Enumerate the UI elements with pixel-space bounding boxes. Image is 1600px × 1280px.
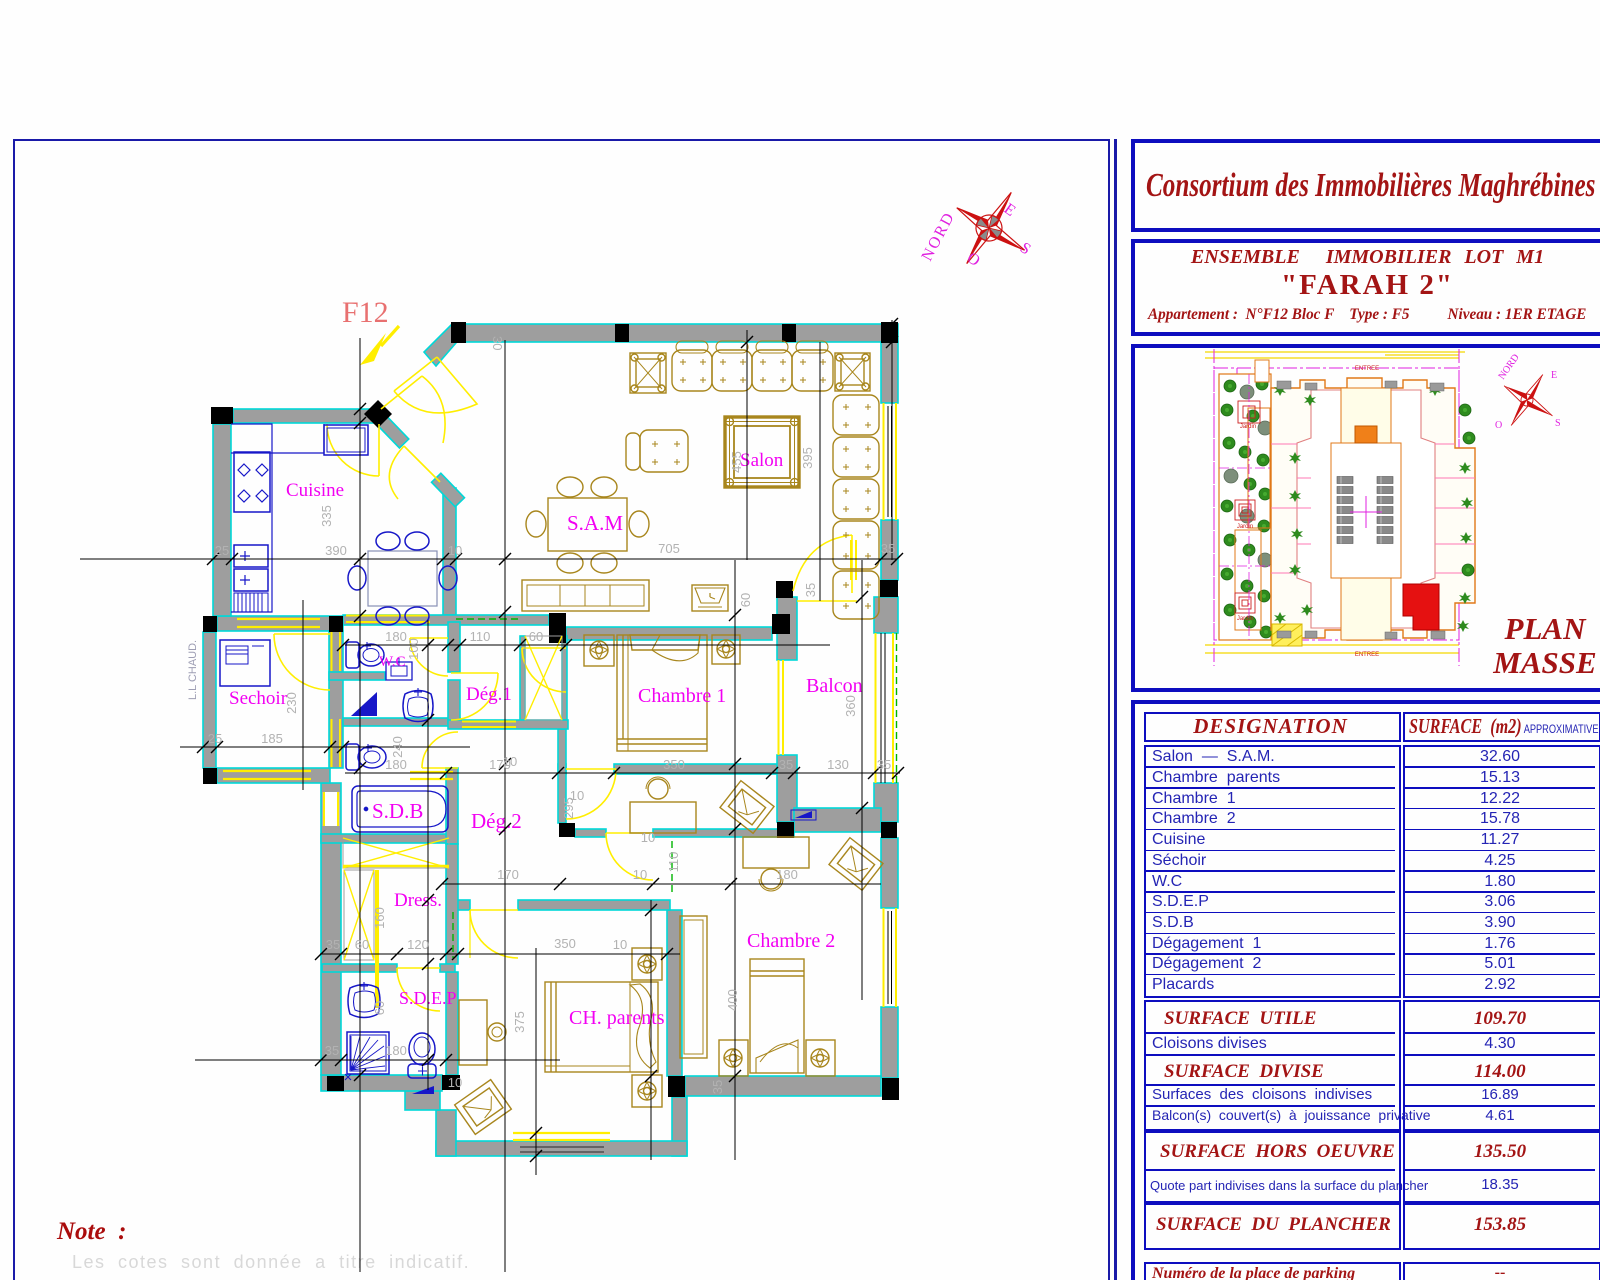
svg-text:120: 120 — [407, 937, 429, 952]
svg-text:390: 390 — [325, 543, 347, 558]
svg-text:35: 35 — [326, 937, 340, 952]
svg-text:455: 455 — [729, 451, 744, 473]
svg-text:10: 10 — [503, 754, 517, 769]
svg-text:35: 35 — [881, 541, 895, 556]
svg-text:S.A.M: S.A.M — [567, 511, 623, 535]
svg-text:180: 180 — [385, 757, 407, 772]
svg-text:S.D.B: S.D.B — [372, 799, 423, 823]
svg-text:Sechoir: Sechoir — [229, 688, 288, 709]
svg-text:35: 35 — [803, 583, 818, 597]
svg-text:295: 295 — [561, 797, 576, 819]
svg-text:Jardin: Jardin — [1237, 524, 1253, 530]
svg-text:NORD: NORD — [919, 209, 959, 264]
svg-text:160: 160 — [372, 907, 387, 929]
svg-text:Jardin: Jardin — [1237, 616, 1253, 622]
svg-text:Balcon: Balcon — [806, 675, 863, 697]
svg-text:705: 705 — [658, 541, 680, 556]
svg-text:185: 185 — [261, 731, 283, 746]
svg-text:35: 35 — [325, 1043, 339, 1058]
svg-text:10: 10 — [448, 1075, 462, 1090]
svg-text:E: E — [1001, 200, 1019, 220]
svg-text:10: 10 — [641, 830, 655, 845]
svg-text:60: 60 — [529, 629, 543, 644]
svg-text:25: 25 — [215, 543, 229, 558]
svg-text:10: 10 — [633, 867, 647, 882]
svg-text:W.C: W.C — [379, 654, 406, 670]
svg-text:60: 60 — [738, 593, 753, 607]
svg-text:400: 400 — [725, 989, 740, 1011]
svg-text:170: 170 — [497, 867, 519, 882]
svg-text:230: 230 — [284, 692, 299, 714]
svg-text:Dég.2: Dég.2 — [471, 809, 522, 833]
svg-text:10: 10 — [613, 937, 627, 952]
svg-text:S: S — [1555, 418, 1561, 429]
svg-text:240: 240 — [390, 736, 405, 758]
svg-text:Chambre 2: Chambre 2 — [747, 930, 835, 952]
svg-text:375: 375 — [512, 1011, 527, 1033]
svg-text:O: O — [964, 249, 983, 270]
svg-text:180: 180 — [385, 629, 407, 644]
svg-text:Dress.: Dress. — [394, 890, 442, 911]
svg-text:F12: F12 — [342, 296, 389, 329]
svg-text:180: 180 — [776, 867, 798, 882]
svg-text:110: 110 — [470, 629, 491, 644]
svg-text:350: 350 — [554, 936, 576, 951]
svg-text:395: 395 — [800, 447, 815, 469]
svg-text:O: O — [1495, 420, 1502, 431]
svg-text:35: 35 — [710, 1080, 725, 1094]
svg-text:350: 350 — [663, 757, 685, 772]
svg-text:Chambre 1: Chambre 1 — [638, 685, 726, 707]
svg-text:130: 130 — [827, 757, 849, 772]
svg-text:335: 335 — [319, 505, 334, 527]
svg-text:60: 60 — [372, 1001, 387, 1015]
svg-text:Cuisine: Cuisine — [286, 480, 344, 501]
svg-text:CH. parents: CH. parents — [569, 1007, 665, 1029]
svg-text:25: 25 — [208, 731, 222, 746]
svg-text:60: 60 — [355, 937, 369, 952]
svg-text:L.L CHAUD.: L.L CHAUD. — [187, 640, 199, 700]
svg-text:S: S — [1017, 239, 1034, 258]
svg-text:360: 360 — [843, 695, 858, 717]
svg-text:100: 100 — [406, 638, 421, 660]
svg-text:ENTREE: ENTREE — [1355, 366, 1379, 372]
svg-text:180: 180 — [385, 1043, 407, 1058]
svg-text:NORD: NORD — [1496, 352, 1521, 382]
svg-text:ENTREE: ENTREE — [1355, 652, 1379, 658]
svg-text:35: 35 — [779, 757, 793, 772]
svg-text:30: 30 — [490, 336, 505, 350]
svg-text:E: E — [1551, 370, 1557, 381]
svg-text:10: 10 — [448, 543, 462, 558]
svg-text:35: 35 — [877, 757, 891, 772]
svg-text:110: 110 — [666, 852, 681, 873]
svg-text:Jardin: Jardin — [1240, 424, 1256, 430]
